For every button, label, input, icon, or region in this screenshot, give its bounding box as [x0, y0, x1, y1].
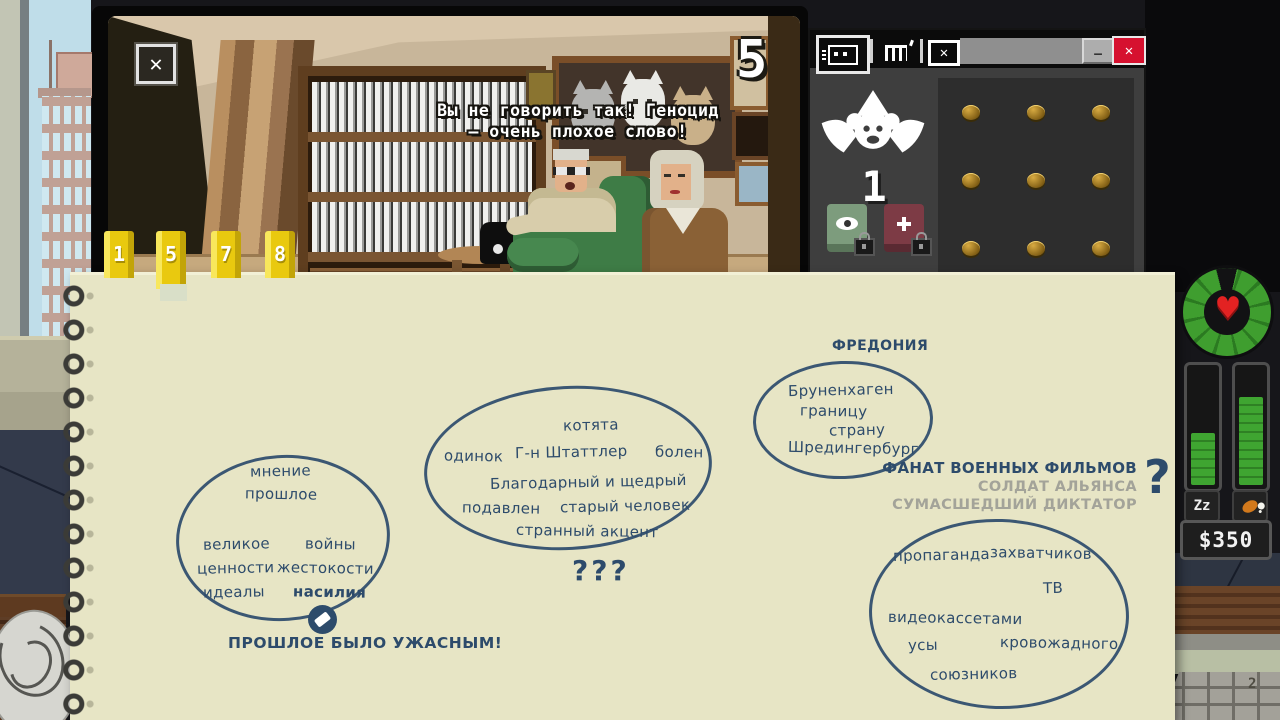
gold-coin[interactable] — [962, 173, 980, 188]
note-word[interactable]: кровожадного — [1000, 633, 1119, 653]
gold-coin[interactable] — [1092, 241, 1110, 256]
note-word[interactable]: старый человек — [560, 496, 691, 517]
heart-icon: ♥ — [1212, 291, 1244, 326]
tab-separator — [920, 39, 923, 63]
eye-icon — [836, 217, 858, 230]
guess-alternative[interactable]: СУМАСШЕДШИЙ ДИКТАТОР — [855, 497, 1137, 513]
notebook-page — [70, 272, 1175, 720]
camera-tab-1[interactable]: 1 — [104, 231, 134, 278]
gold-coin[interactable] — [1027, 241, 1045, 256]
desk-edge — [1168, 634, 1280, 651]
note-word[interactable]: болен — [655, 443, 704, 462]
dialogue-line-2: — очень плохое слово! — [408, 121, 748, 142]
drumstick-icon — [1240, 497, 1259, 515]
lock-icon — [854, 238, 875, 256]
desk-mat — [1170, 650, 1280, 674]
close-icon: ✕ — [149, 52, 162, 77]
watch-button[interactable] — [827, 204, 867, 252]
inventory-body: 1 — [810, 68, 1144, 290]
woman-face — [661, 164, 691, 200]
coin-grid — [938, 78, 1134, 283]
gold-coin[interactable] — [1092, 173, 1110, 188]
money-display: $350 — [1180, 520, 1272, 560]
plus-icon — [897, 217, 911, 231]
hunger-gauge-fill — [1239, 397, 1263, 485]
gold-coin[interactable] — [962, 241, 980, 256]
note-word[interactable]: прошлое — [245, 484, 318, 503]
identity-guesses: ФАНАТ ВОЕННЫХ ФИЛЬМОВ СОЛДАТ АЛЬЯНСА СУМ… — [855, 459, 1137, 513]
hunger-gauge — [1232, 362, 1270, 492]
eraser-button[interactable] — [308, 605, 337, 634]
note-word[interactable]: странный акцент — [516, 521, 659, 541]
camera-tab-7[interactable]: 7 — [211, 231, 241, 278]
spiral-binding — [54, 279, 98, 720]
keyboard-key-2[interactable]: 2 — [1248, 676, 1256, 692]
inventory-window: ✕ — ✕ — [808, 28, 1146, 294]
note-word[interactable]: котята — [563, 415, 619, 434]
note-word[interactable]: границу — [800, 401, 868, 420]
gold-coin[interactable] — [1027, 173, 1045, 188]
note-word[interactable]: захватчиков — [990, 543, 1092, 563]
old-man-glasses — [553, 167, 590, 175]
note-word[interactable]: подавлен — [462, 498, 541, 517]
food-chip — [1232, 490, 1268, 522]
tab-blocked[interactable]: ✕ — [924, 40, 964, 66]
old-man-mouth — [565, 182, 575, 190]
conclusion-past[interactable]: ПРОШЛОЕ БЫЛО УЖАСНЫМ! — [228, 634, 502, 652]
dark-column — [768, 16, 800, 283]
minimize-icon: — — [1094, 47, 1102, 62]
guess-question-mark[interactable]: ? — [1144, 450, 1171, 504]
vhs-tapes-row — [312, 142, 532, 192]
note-word[interactable]: пропаганда — [893, 545, 990, 565]
gold-coin[interactable] — [962, 105, 980, 120]
game-screen: 2 — [0, 0, 1280, 720]
sleep-gauge — [1184, 362, 1222, 492]
sleep-icon: Zz — [1194, 498, 1211, 514]
note-word[interactable]: союзников — [930, 664, 1018, 684]
note-word[interactable]: страну — [829, 420, 886, 439]
note-word[interactable]: ценности — [197, 558, 275, 578]
monitor-bezel-right — [1145, 0, 1280, 292]
note-word[interactable]: одинок — [444, 446, 503, 465]
add-button[interactable] — [884, 204, 924, 252]
camera-close-button[interactable]: ✕ — [136, 44, 176, 84]
camera-tab-8[interactable]: 8 — [265, 231, 295, 278]
sleep-chip: Zz — [1184, 490, 1220, 522]
note-word[interactable]: Г-н Штаттлер — [515, 442, 628, 462]
lock-icon — [911, 238, 932, 256]
dialogue-subtitle: Вы не говорить так! Геноцид — очень плох… — [408, 100, 748, 142]
close-icon: ✕ — [1125, 43, 1133, 59]
note-word[interactable]: войны — [305, 535, 356, 554]
tab-separator — [870, 39, 873, 63]
cage-tab-icon — [885, 45, 907, 61]
note-word[interactable]: жестокости — [277, 558, 374, 578]
shelf-board — [308, 192, 536, 202]
note-word[interactable]: видеокассетами — [888, 608, 1023, 628]
blocked-tab-icon: ✕ — [928, 40, 960, 66]
note-word[interactable]: великое — [203, 534, 270, 553]
note-word[interactable]: мнение — [250, 461, 311, 480]
camera-monitor: Вы не говорить так! Геноцид — очень плох… — [92, 6, 808, 292]
gold-coin[interactable] — [1027, 105, 1045, 120]
camera-number: 5 — [736, 30, 767, 90]
desk-wood — [1168, 586, 1280, 636]
gold-coin[interactable] — [1092, 105, 1110, 120]
dialogue-line-1: Вы не говорить так! Геноцид — [408, 100, 748, 121]
inventory-titlebar: ✕ — ✕ — [810, 30, 1144, 68]
guess-alternative[interactable]: СОЛДАТ АЛЬЯНСА — [855, 479, 1137, 495]
cassette-tab-icon — [828, 45, 858, 65]
armchair-armrest — [507, 238, 579, 272]
note-word[interactable]: усы — [908, 636, 938, 655]
camera-tab-5-active[interactable]: 5 — [156, 231, 186, 289]
keyboard[interactable] — [1160, 672, 1280, 720]
note-word[interactable]: ТВ — [1043, 579, 1063, 597]
minimize-button[interactable]: — — [1082, 38, 1114, 64]
sleep-gauge-fill — [1191, 433, 1215, 485]
window-close-button[interactable]: ✕ — [1112, 36, 1146, 65]
monkey-club-icon — [818, 84, 928, 166]
note-word[interactable]: Бруненхаген — [788, 380, 894, 400]
conclusion-unknown[interactable]: ??? — [572, 554, 630, 587]
guess-primary[interactable]: ФАНАТ ВОЕННЫХ ФИЛЬМОВ — [855, 459, 1137, 477]
note-word[interactable]: Шредингербург — [788, 438, 919, 458]
note-word[interactable]: насилия — [293, 582, 366, 601]
tab-cage[interactable] — [876, 40, 916, 66]
note-word[interactable]: идеалы — [203, 582, 265, 601]
